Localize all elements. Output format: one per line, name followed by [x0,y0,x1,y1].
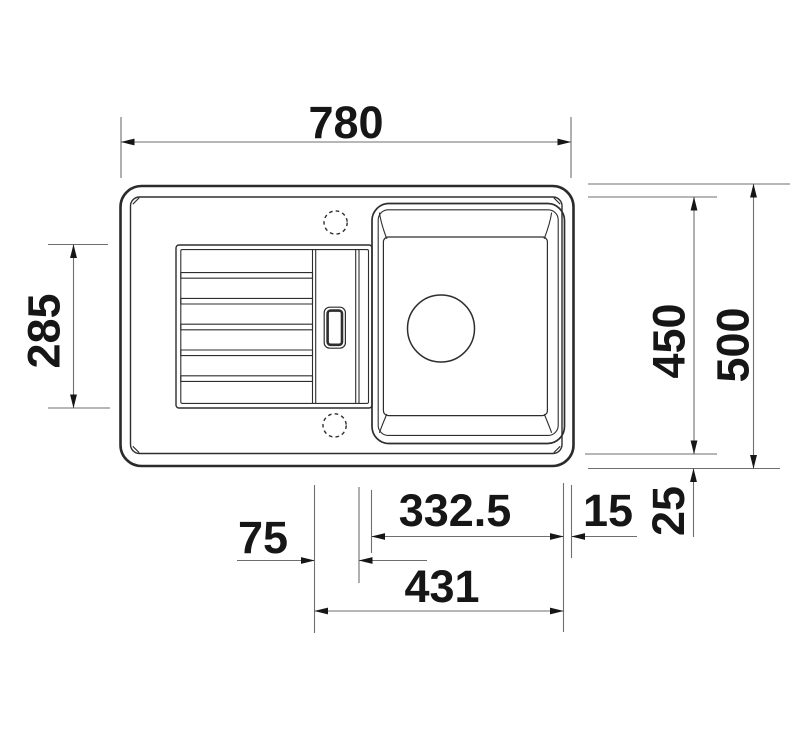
drainer-board [176,245,372,408]
bowl-step-edge [378,210,558,436]
dim-inner-depth: 450 [585,197,717,454]
dim-780-label: 780 [308,97,383,148]
dim-overall-width: 780 [121,97,571,178]
dim-500-label: 500 [708,307,759,382]
dim-450-label: 450 [644,303,695,378]
drawing-canvas: 780 285 450 500 25 75 332.5 15 [0,0,791,729]
drainer-divider-lines [313,250,360,404]
dim-285-label: 285 [19,293,70,368]
sink-dimension-drawing: 780 285 450 500 25 75 332.5 15 [0,0,791,729]
rim-corner-ticks [133,198,560,453]
bowl-outer-edge [372,204,565,444]
dim-bowl-edge-gap: 15 [572,485,638,558]
overflow-recess-inner [328,311,342,345]
sink-outer-edge [121,186,574,466]
dim-15-label: 15 [583,485,633,536]
drainer-ribs [181,273,313,382]
dim-drainer-length: 285 [19,245,111,409]
tap-hole-bottom [323,414,346,437]
dim-bowl-span: 431 [315,561,564,612]
dim-25-label: 25 [643,486,694,536]
dim-rim-gap: 25 [643,469,694,538]
bowl [372,204,565,444]
sink-body [121,186,574,466]
dim-75-label: 75 [238,512,288,563]
bowl-corner-walls [379,213,551,433]
dim-431-label: 431 [404,561,479,612]
dim-332-label: 332.5 [399,485,512,536]
tap-hole-top [324,211,347,234]
drain-hole [408,295,475,362]
